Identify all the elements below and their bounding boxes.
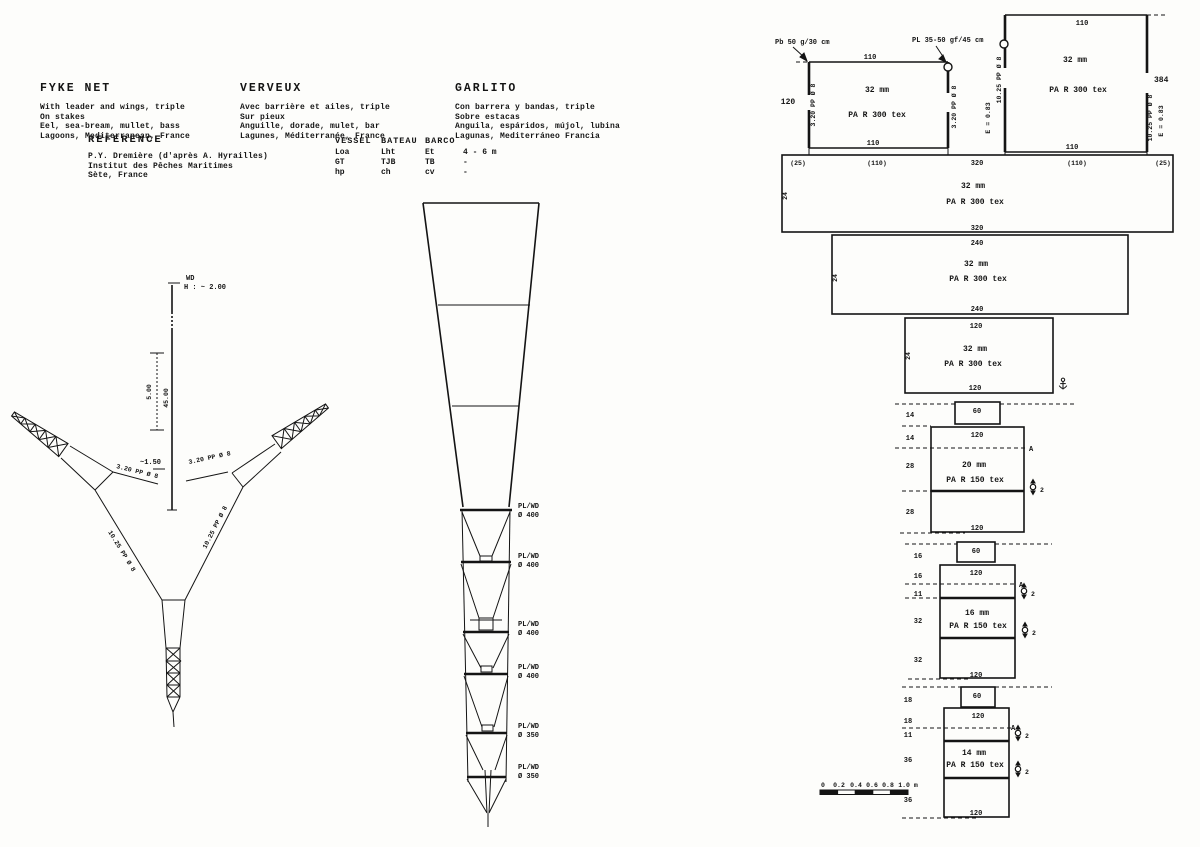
scale-bar (820, 790, 908, 795)
scale-tick: 0.4 (850, 782, 862, 789)
mesh-count: (25) (790, 160, 806, 167)
ring-icon (1030, 480, 1035, 495)
panel-body3-bottom-count: 120 (969, 385, 982, 393)
float-label: PL 35-50 gf/45 cm (912, 37, 983, 45)
vessel-cell: hp (335, 168, 381, 178)
panel-leader (1000, 15, 1165, 155)
panel-body3-top-count: 120 (970, 323, 983, 331)
reference-line: Institut des Pêches Maritimes (88, 162, 268, 172)
panel-leader-twine: PA R 300 tex (1049, 86, 1107, 95)
hoop-label: Ø 400 (518, 511, 539, 520)
section1-ring-count: 2 (1040, 487, 1044, 494)
hoop-label: PL/WD (518, 664, 539, 672)
gear-title-en: FYKE NET (40, 82, 190, 95)
lang-block-english: FYKE NET With leader and wings, triple O… (40, 82, 190, 141)
wing-net-left (8, 407, 113, 490)
lang-block-french: VERVEUX Avec barrière et ailes, triple S… (240, 82, 390, 141)
panel-body1-mesh: 32 mm (961, 182, 985, 191)
vessel-row: hp ch cv - (335, 168, 517, 178)
hoop-labels: PL/WD Ø 400 PL/WD Ø 400 PL/WD Ø 400 PL/W… (518, 503, 539, 781)
anchor-icon (1059, 378, 1067, 389)
panel-body1-twine: PA R 300 tex (946, 198, 1004, 207)
vessel-value: 4 - 6 m (463, 148, 517, 158)
panel-body2-depth: 24 (832, 274, 839, 282)
desc-line: On stakes (40, 113, 190, 123)
float-icon (944, 63, 952, 71)
hoop-label: Ø 400 (518, 561, 539, 570)
dim-5m-label: 5.00 (146, 384, 153, 400)
pot-body (460, 510, 512, 827)
lang-block-spanish: GARLITO Con barrera y bandas, triple Sob… (455, 82, 620, 141)
section2-top-count: 120 (970, 570, 983, 578)
panel-wing-mesh: 32 mm (865, 86, 889, 95)
reference-title: REFERENCE (88, 134, 268, 146)
section2-box-count: 60 (972, 548, 980, 556)
section1-point-a: A (1029, 446, 1034, 454)
scale-tick: 0.2 (833, 782, 845, 789)
panel-body1-bottom-count: 320 (971, 225, 984, 233)
section3-bottom-count: 120 (970, 810, 983, 818)
sinker-arrow (793, 47, 807, 61)
vessel-value: - (463, 168, 517, 178)
mesh-count: (25) (1155, 160, 1171, 167)
hoop-label: PL/WD (518, 723, 539, 731)
hoop-label: PL/WD (518, 621, 539, 629)
stake-label: WD (186, 275, 194, 283)
section3-mesh: 14 mm (962, 749, 986, 758)
plan-view-diagram: WD H : ~ 2.00 5.00 45.00 ~1.50 (0, 250, 340, 847)
panel-wing-bottom-count: 110 (867, 140, 880, 148)
float-icon (1000, 40, 1008, 48)
mesh-count: 320 (971, 160, 984, 168)
section3-count: 36 (904, 797, 912, 805)
vessel-row: GT TJB TB - (335, 158, 517, 168)
section1-count: 28 (906, 509, 914, 517)
scale-tick: 1.0 m (898, 782, 918, 789)
desc-line: Anguila, espáridos, mújol, lubina (455, 122, 620, 132)
gear-title-es: GARLITO (455, 82, 620, 95)
section2-ring-count: 2 (1031, 591, 1035, 598)
panel-body3-depth: 24 (905, 352, 912, 360)
panel-wing-rope-left: 3.20 PP Ø 8 (809, 83, 817, 126)
scale-tick: 0 (821, 782, 825, 789)
section3-ring-count: 2 (1025, 733, 1029, 740)
section1-box-count: 60 (973, 408, 981, 416)
vessel-table: VESSEL BATEAU BARCO Loa Lht Et 4 - 6 m G… (335, 136, 517, 178)
panel-wing-depth: 120 (781, 98, 796, 107)
panel-leader-rope-right: 10.25 PP Ø 8 (1146, 94, 1154, 141)
desc-line: With leader and wings, triple (40, 103, 190, 113)
section1-count: 14 (906, 412, 914, 420)
hoop-label: Ø 400 (518, 629, 539, 638)
hoop-label: Ø 350 (518, 731, 539, 740)
hoop-label: PL/WD (518, 503, 539, 511)
hoop-label: PL/WD (518, 764, 539, 772)
panel-leader-top-count: 110 (1076, 20, 1089, 28)
hoop-label: Ø 400 (518, 672, 539, 681)
wing-net-right (232, 400, 332, 487)
side-view-diagram: PL/WD Ø 400 PL/WD Ø 400 PL/WD Ø 400 PL/W… (400, 190, 630, 845)
section1-mesh: 20 mm (962, 461, 986, 470)
vessel-cell: Et (425, 148, 463, 158)
panel-leader-hanging-left: E = 0.83 (985, 102, 992, 133)
vessel-cell: TB (425, 158, 463, 168)
hoop-label: Ø 350 (518, 772, 539, 781)
desc-line: Sobre estacas (455, 113, 620, 123)
vessel-row: Loa Lht Et 4 - 6 m (335, 148, 517, 158)
section2-ring-count: 2 (1032, 630, 1036, 637)
section1-count: 28 (906, 463, 914, 471)
panel-body3-mesh: 32 mm (963, 345, 987, 354)
section3-top-count: 120 (972, 713, 985, 721)
mesh-count: (110) (867, 160, 887, 167)
panel-leader-rope-left: 10.25 PP Ø 8 (995, 56, 1003, 103)
vessel-cell: cv (425, 168, 463, 178)
long-rope-left-label: 10.25 PP Ø 8 (106, 529, 137, 573)
vessel-cell: Loa (335, 148, 381, 158)
desc-line: Anguille, dorade, mulet, bar (240, 122, 390, 132)
vessel-header-row: VESSEL BATEAU BARCO (335, 136, 517, 146)
long-rope-right-label: 10.25 PP Ø 8 (201, 504, 229, 549)
section2-count: 11 (914, 591, 922, 599)
entrance-funnel (423, 203, 539, 507)
vessel-cell: Lht (381, 148, 425, 158)
section1-top-count: 120 (971, 432, 984, 440)
section2-count: 16 (914, 573, 922, 581)
section2-count: 32 (914, 618, 922, 626)
vessel-header: BARCO (425, 136, 463, 146)
ring-icon (1015, 726, 1020, 741)
ring-icon (1015, 762, 1020, 777)
panel-body1-depth: 24 (782, 192, 789, 200)
section2-count: 16 (914, 553, 922, 561)
section3-count: 18 (904, 718, 912, 726)
panel-body2-top-count: 240 (971, 240, 984, 248)
section2-bottom-count: 120 (970, 672, 983, 680)
panel-body2-mesh: 32 mm (964, 260, 988, 269)
section1-twine: PA R 150 tex (946, 476, 1004, 485)
panel-leader-hanging-right: E = 0.83 (1158, 105, 1165, 136)
panel-wing-twine: PA R 300 tex (848, 111, 906, 120)
mesh-count: (110) (1067, 160, 1087, 167)
gap-dim-label: ~1.50 (140, 459, 161, 467)
stake-height-label: H : ~ 2.00 (184, 284, 226, 292)
section3-ring-count: 2 (1025, 769, 1029, 776)
catalogue-page: FYKE NET With leader and wings, triple O… (0, 0, 1200, 847)
ring-icon (1022, 623, 1027, 638)
section3-count: 36 (904, 757, 912, 765)
section3-twine: PA R 150 tex (946, 761, 1004, 770)
panel-wing-top-count: 110 (864, 54, 877, 62)
vessel-value: - (463, 158, 517, 168)
section3-box-count: 60 (973, 693, 981, 701)
center-fyke-pot (162, 600, 185, 727)
section3-count: 11 (904, 732, 912, 740)
reference-block: REFERENCE P.Y. Dremière (d'après A. Hyra… (88, 134, 268, 181)
reference-line: Sète, France (88, 171, 268, 181)
vessel-header: VESSEL (335, 136, 381, 146)
panel-wing-rope-right: 3.20 PP Ø 8 (950, 85, 958, 128)
vessel-header: BATEAU (381, 136, 425, 146)
section3-count: 18 (904, 697, 912, 705)
hoop-label: PL/WD (518, 553, 539, 561)
desc-line: Sur pieux (240, 113, 390, 123)
panel-body3-twine: PA R 300 tex (944, 360, 1002, 369)
panel-leader-bottom-count: 110 (1066, 144, 1079, 152)
gear-title-fr: VERVEUX (240, 82, 390, 95)
sinker-label: Pb 50 g/30 cm (775, 39, 830, 47)
scale-tick: 0.8 (882, 782, 894, 789)
wing-rope-right-label: 3.20 PP Ø 8 (188, 449, 232, 466)
section2-count: 32 (914, 657, 922, 665)
vessel-cell: GT (335, 158, 381, 168)
desc-line: Avec barrière et ailes, triple (240, 103, 390, 113)
float-arrow (936, 46, 946, 62)
panel-leader-mesh: 32 mm (1063, 56, 1087, 65)
panel-body2-twine: PA R 300 tex (949, 275, 1007, 284)
section1-count: 14 (906, 435, 914, 443)
netting-plan-diagram: 110 32 mm PA R 300 tex 110 120 3.20 PP Ø… (760, 0, 1200, 847)
scale-tick: 0.6 (866, 782, 878, 789)
vessel-cell: TJB (381, 158, 425, 168)
section1-bottom-count: 120 (971, 525, 984, 533)
vessel-cell: ch (381, 168, 425, 178)
desc-line: Con barrera y bandas, triple (455, 103, 620, 113)
section2-twine: PA R 150 tex (949, 622, 1007, 631)
panel-body2-bottom-count: 240 (971, 306, 984, 314)
desc-line: Eel, sea-bream, mullet, bass (40, 122, 190, 132)
leader-length-label: 45.00 (163, 388, 170, 408)
reference-line: P.Y. Dremière (d'après A. Hyrailles) (88, 152, 268, 162)
section2-mesh: 16 mm (965, 609, 989, 618)
panel-leader-depth: 384 (1154, 76, 1169, 85)
